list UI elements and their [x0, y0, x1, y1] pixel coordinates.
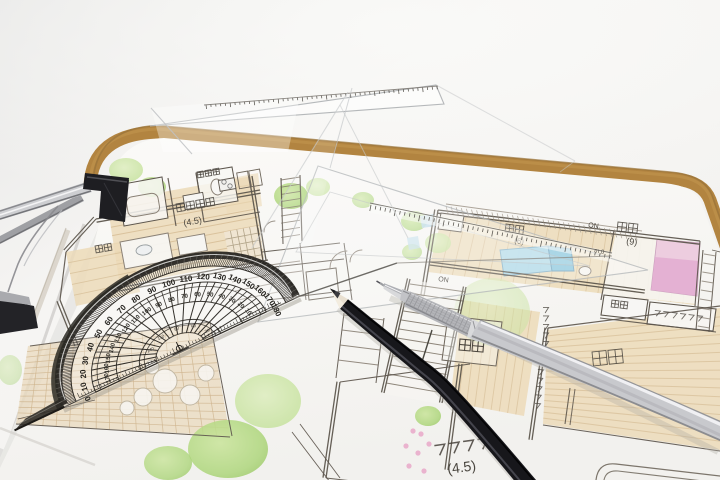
svg-text:60: 60 — [194, 292, 202, 299]
svg-text:110: 110 — [179, 274, 193, 284]
svg-text:20: 20 — [78, 369, 88, 379]
svg-text:(9): (9) — [626, 236, 638, 247]
svg-text:160: 160 — [104, 362, 111, 373]
svg-text:ON: ON — [588, 222, 599, 230]
svg-text:120: 120 — [196, 272, 211, 282]
svg-text:30: 30 — [81, 355, 91, 365]
svg-text:70: 70 — [181, 294, 189, 301]
svg-text:150: 150 — [106, 352, 113, 363]
